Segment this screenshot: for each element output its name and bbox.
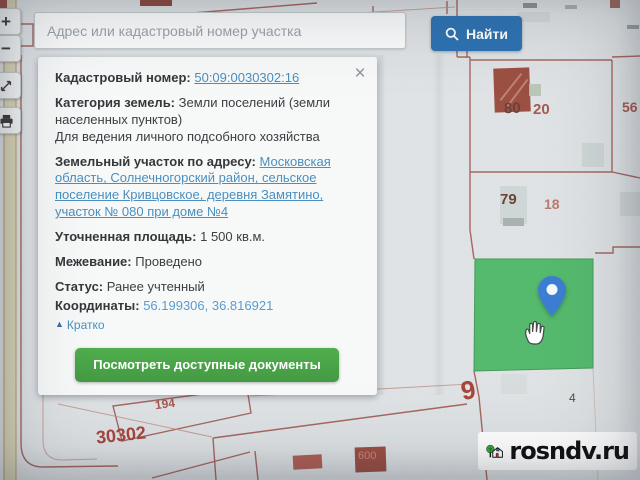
zoom-in-button[interactable]: + — [0, 8, 21, 35]
plus-icon: + — [1, 12, 11, 32]
survey-value: Проведено — [135, 254, 202, 269]
field-area: Уточненная площадь: 1 500 кв.м. — [55, 229, 351, 246]
parcel-label: 56 — [622, 99, 638, 115]
hand-cursor-icon — [523, 318, 546, 345]
house-tree-logo-icon — [486, 436, 503, 466]
search-input[interactable] — [34, 12, 406, 49]
close-icon[interactable]: × — [351, 65, 369, 83]
search-icon — [445, 27, 459, 41]
field-address: Земельный участок по адресу: Московская … — [55, 154, 351, 222]
search-bar: Найти — [34, 12, 522, 51]
land-category-label: Категория земель: — [55, 95, 175, 110]
view-documents-button[interactable]: Посмотреть доступные документы — [75, 348, 339, 382]
area-value: 1 500 кв.м. — [200, 229, 265, 244]
parcel-info-panel: × Кадастровый номер: 50:09:0030302:16 Ка… — [38, 57, 377, 395]
building-label: 600 — [358, 450, 376, 462]
parcel-label: 194 — [154, 396, 176, 412]
map-pin-icon — [538, 276, 566, 316]
survey-label: Межевание: — [55, 254, 132, 269]
measure-button[interactable] — [0, 72, 21, 99]
cadastral-number-link[interactable]: 50:09:0030302:16 — [194, 70, 299, 85]
address-label: Земельный участок по адресу: — [55, 154, 256, 169]
cadastral-map-app: 80 20 56 79 18 9 4 194 30302 30302 600 +… — [0, 0, 640, 480]
collapse-arrow-icon: ▲ — [55, 319, 64, 331]
field-cadastral-number: Кадастровый номер: 50:09:0030302:16 — [55, 70, 351, 87]
field-land-category: Категория земель: Земли поселений (земли… — [55, 95, 351, 146]
parcel-label: 18 — [544, 196, 560, 212]
field-status: Статус: Ранее учтенный — [55, 279, 351, 296]
parcel-label: 20 — [533, 101, 550, 118]
search-button-label: Найти — [466, 26, 508, 42]
land-usage-value: Для ведения личного подсобного хозяйства — [55, 129, 351, 146]
field-coordinates: Координаты: 56.199306, 36.816921 — [55, 298, 351, 315]
minus-icon: − — [1, 39, 11, 59]
collapse-link[interactable]: ▲Кратко — [55, 318, 105, 334]
selected-parcel[interactable] — [474, 259, 593, 371]
collapse-label: Кратко — [67, 318, 105, 332]
parcel-label: 80 — [504, 100, 521, 118]
site-watermark: rosndv.ru — [478, 432, 637, 470]
print-button[interactable] — [0, 107, 21, 134]
parcel-label: 4 — [569, 391, 576, 405]
field-survey: Межевание: Проведено — [55, 254, 351, 271]
search-button[interactable]: Найти — [431, 16, 522, 51]
area-label: Уточненная площадь: — [55, 229, 196, 244]
measure-icon — [0, 79, 13, 93]
printer-icon — [0, 114, 14, 128]
coordinates-value: 56.199306, 36.816921 — [143, 298, 273, 313]
status-value: Ранее учтенный — [107, 279, 205, 294]
cadastral-number-label: Кадастровый номер: — [55, 70, 191, 85]
coordinates-label: Координаты: — [55, 298, 140, 313]
status-label: Статус: — [55, 279, 103, 294]
parcel-label: 79 — [500, 191, 517, 208]
zoom-out-button[interactable]: − — [0, 35, 21, 62]
watermark-text: rosndv.ru — [509, 437, 629, 465]
